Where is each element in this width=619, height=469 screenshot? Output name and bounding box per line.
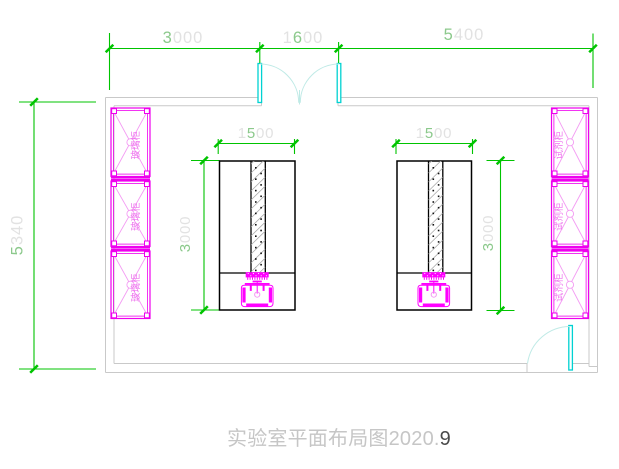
svg-text:玻璃柜: 玻璃柜 [130, 202, 142, 231]
svg-text:玻璃柜: 玻璃柜 [130, 273, 142, 302]
svg-text:3000: 3000 [480, 215, 497, 252]
svg-text:5400: 5400 [444, 26, 485, 44]
svg-text:试剂柜: 试剂柜 [553, 202, 565, 231]
svg-text:1500: 1500 [416, 125, 453, 142]
svg-text:试剂柜: 试剂柜 [553, 273, 565, 302]
svg-text:试剂柜: 试剂柜 [553, 131, 565, 160]
svg-text:1500: 1500 [238, 125, 275, 142]
svg-text:实验室平面布局图2020.9: 实验室平面布局图2020.9 [227, 427, 451, 450]
svg-text:5340: 5340 [9, 215, 27, 256]
svg-text:玻璃柜: 玻璃柜 [130, 131, 142, 160]
svg-text:3000: 3000 [163, 29, 204, 47]
svg-text:3000: 3000 [177, 216, 194, 253]
svg-text:1600: 1600 [283, 29, 324, 47]
